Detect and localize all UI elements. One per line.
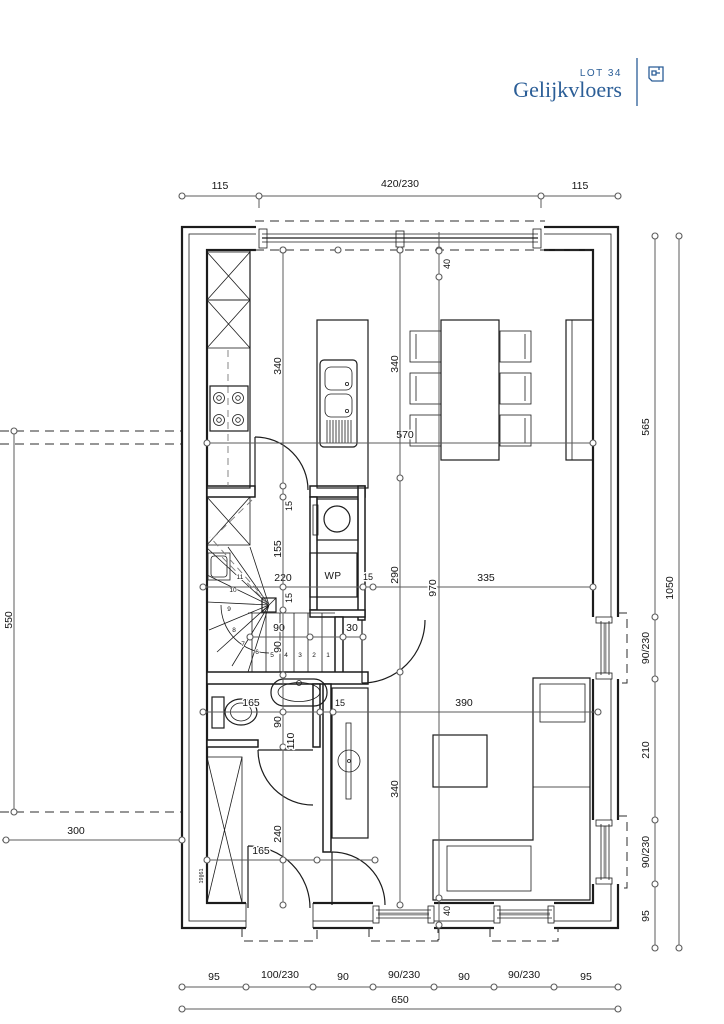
cooktop [210,386,248,431]
closet-annotation: 19||61 [199,868,205,883]
dim-right-total: 1050 [664,576,676,600]
dim-110: 110 [285,732,297,749]
dim-30: 30 [346,622,358,634]
wc-door [258,750,313,805]
page-title: Gelijkvloers [513,77,622,102]
dim-right-win1: 90/230 [640,632,652,664]
dim-top-115l: 115 [212,180,229,192]
dim-bot-2: 90 [337,971,349,983]
stair-tread-2: 2 [312,652,316,659]
stair-tread-8: 8 [232,627,236,634]
floorplan-page: LOT 34 Gelijkvloers [0,0,724,1024]
sideboard [566,320,593,460]
dim-carport-h: 550 [3,611,15,629]
dining-table [441,320,499,460]
dim-bot-1: 100/230 [261,969,299,981]
dim-bot-3: 90/230 [388,969,420,981]
stair-tread-4: 4 [284,652,288,659]
stair-tread-3: 3 [298,652,302,659]
header: LOT 34 Gelijkvloers [513,58,663,106]
dim-right-win2: 90/230 [640,836,652,868]
dim-top-115r: 115 [572,180,589,192]
stair-tread-1: 1 [326,652,330,659]
dim-bot-total: 650 [391,994,409,1006]
dim-carport-w: 300 [67,825,85,837]
floorplan-drawing: LOT 34 Gelijkvloers [0,0,724,1024]
dim-15d: 15 [335,698,345,708]
dim-right-95: 95 [640,910,652,922]
dim-15c: 15 [284,593,294,603]
dim-right-210: 210 [640,741,652,759]
hall-closet: 19||61 [199,757,242,903]
dim-165-wc: 165 [242,697,260,709]
sofa [433,678,590,900]
stair-tread-9: 9 [227,606,231,613]
dim-340-kitchen: 340 [272,357,284,375]
sink-drainer [327,420,351,443]
dim-bot-5: 90/230 [508,969,540,981]
dim-90-well: 90 [272,641,284,653]
interior-walls [207,486,368,852]
dim-bot-0: 95 [208,971,220,983]
floorplan-icon [649,67,663,81]
dim-40-top: 40 [442,259,452,269]
coffee-table [433,735,487,787]
dim-335: 335 [477,572,495,584]
dim-390: 390 [455,697,473,709]
stair-tread-11: 11 [237,574,244,581]
kitchen-island [317,320,368,488]
dim-155: 155 [272,540,284,558]
tv-cabinet [332,688,368,838]
dim-top-window: 420/230 [381,178,419,190]
dim-bot-6: 95 [580,971,592,983]
dim-340a: 340 [389,355,401,373]
dim-right-565: 565 [640,418,652,436]
dim-290: 290 [389,566,401,584]
dining-chairs [410,331,531,446]
dim-15b: 15 [284,501,294,511]
kitchen-door [255,437,308,490]
stair-tread-7: 7 [241,641,245,648]
stair-tread-6: 6 [255,649,259,656]
dim-165-hall: 165 [252,845,270,857]
dim-570: 570 [396,429,414,441]
dimension-lines: 115 420/230 115 95 100/230 90 90/230 90 … [2,178,682,1012]
dim-15a: 15 [363,572,373,582]
utility-door [362,620,425,683]
stair-tread-10: 10 [229,587,237,594]
dim-90-basin: 90 [272,716,284,728]
dim-240: 240 [272,825,284,843]
dim-340b: 340 [389,780,401,798]
dim-970: 970 [427,579,439,597]
wp-label: WP [324,571,341,582]
kitchen-counter [207,250,250,488]
dim-40-bottom: 40 [442,906,452,916]
washing-machine [313,499,358,540]
dim-bot-4: 90 [458,971,470,983]
carport-outline [0,431,182,812]
